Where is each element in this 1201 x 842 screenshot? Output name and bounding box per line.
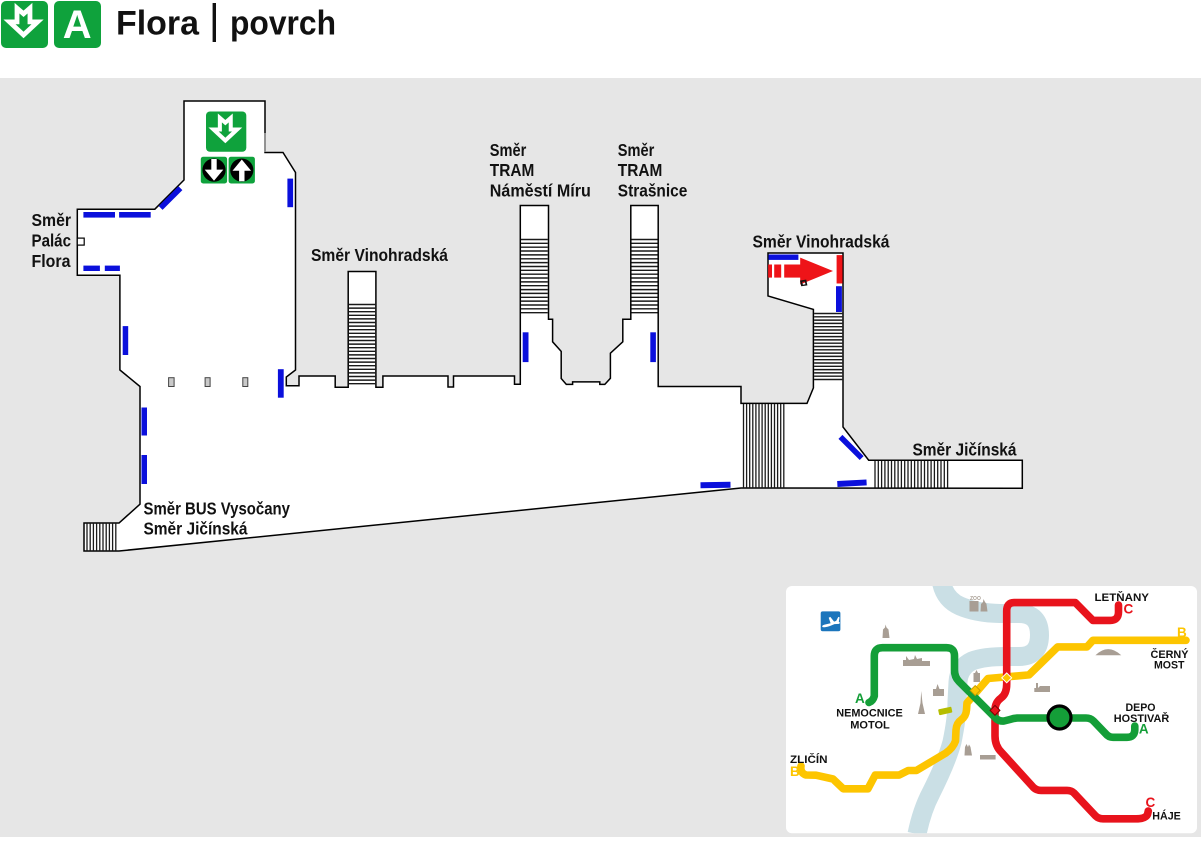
svg-text:C: C	[1146, 795, 1156, 810]
svg-text:TRAM: TRAM	[490, 160, 535, 180]
svg-text:B: B	[1177, 625, 1187, 640]
svg-text:povrch: povrch	[230, 5, 336, 43]
svg-text:A: A	[855, 691, 865, 706]
svg-text:Palác: Palác	[32, 231, 72, 251]
svg-text:MOTOL: MOTOL	[850, 719, 890, 731]
svg-text:B: B	[790, 764, 800, 779]
svg-text:ZOO: ZOO	[970, 596, 981, 602]
svg-text:Strašnice: Strašnice	[618, 181, 688, 201]
svg-text:MOST: MOST	[1154, 660, 1185, 672]
svg-text:Směr Vinohradská: Směr Vinohradská	[311, 245, 448, 265]
svg-text:NEMOCNICE: NEMOCNICE	[836, 708, 903, 720]
svg-text:Flora: Flora	[116, 5, 200, 43]
svg-text:Směr: Směr	[32, 210, 72, 230]
svg-text:Směr Vinohradská: Směr Vinohradská	[753, 232, 890, 252]
svg-text:HÁJE: HÁJE	[1152, 810, 1181, 823]
svg-text:Směr: Směr	[490, 140, 527, 160]
svg-text:A: A	[63, 3, 92, 47]
svg-text:C: C	[1124, 602, 1134, 617]
svg-text:Směr: Směr	[618, 140, 655, 160]
svg-text:TRAM: TRAM	[618, 160, 663, 180]
svg-text:Náměstí Míru: Náměstí Míru	[490, 181, 591, 201]
svg-text:Směr Jičínská: Směr Jičínská	[913, 439, 1017, 459]
svg-text:A: A	[1139, 722, 1149, 737]
svg-text:Flora: Flora	[32, 251, 71, 271]
svg-text:Směr Jičínská: Směr Jičínská	[144, 519, 248, 539]
svg-text:Směr BUS Vysočany: Směr BUS Vysočany	[144, 499, 291, 519]
svg-text:LETŇANY: LETŇANY	[1095, 591, 1150, 604]
